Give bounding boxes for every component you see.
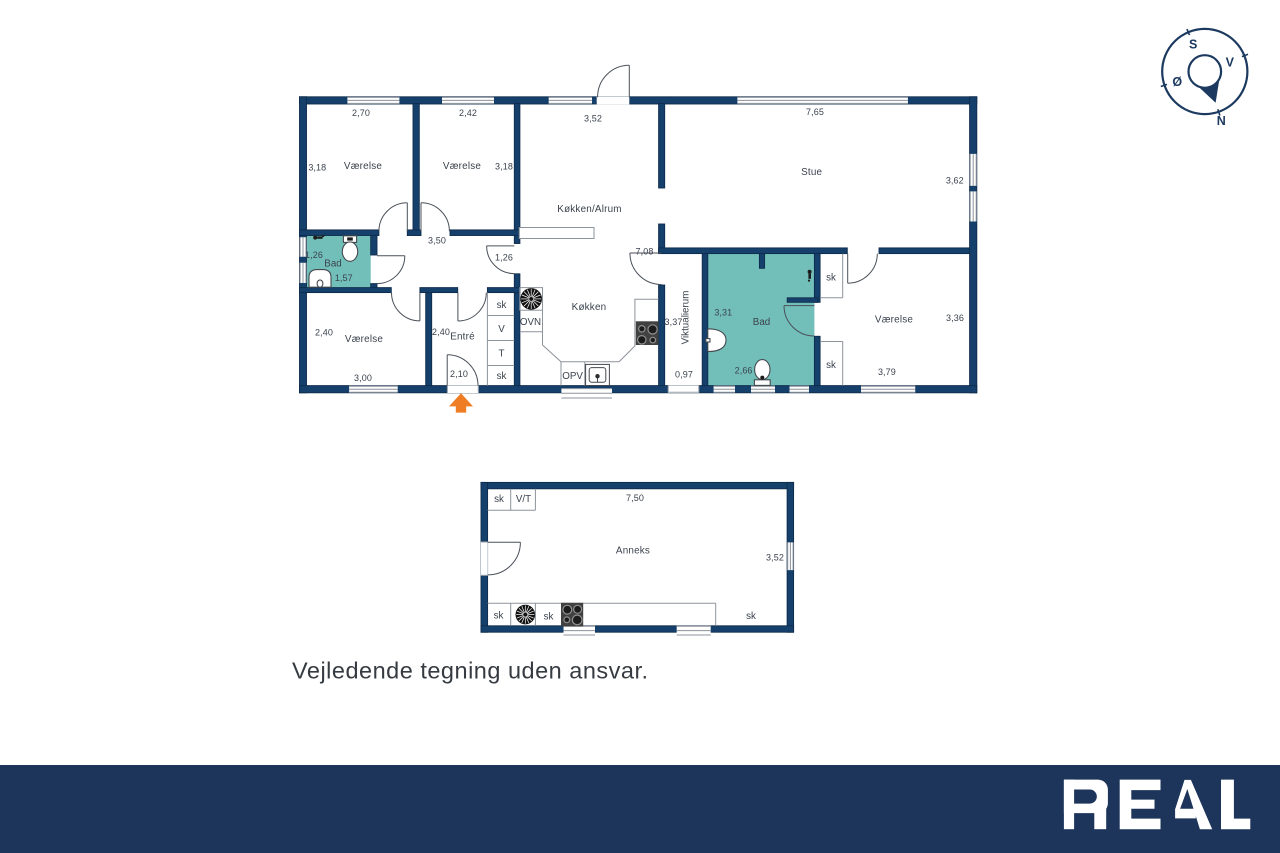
svg-text:sk: sk: [826, 360, 836, 371]
svg-text:V: V: [498, 324, 505, 335]
svg-text:sk: sk: [497, 300, 507, 311]
svg-text:N: N: [1217, 114, 1226, 128]
svg-text:3,52: 3,52: [584, 113, 602, 123]
svg-text:3,79: 3,79: [878, 367, 896, 377]
svg-text:3,36: 3,36: [946, 313, 964, 323]
svg-text:Værelse: Værelse: [344, 161, 382, 172]
svg-text:1,57: 1,57: [335, 273, 353, 283]
svg-text:7,65: 7,65: [806, 107, 824, 117]
svg-text:3,18: 3,18: [308, 163, 326, 173]
svg-text:Bad: Bad: [753, 317, 770, 328]
svg-text:V/T: V/T: [516, 494, 531, 505]
svg-text:2,10: 2,10: [450, 369, 468, 379]
svg-text:Anneks: Anneks: [616, 546, 650, 557]
svg-text:3,50: 3,50: [428, 236, 446, 246]
svg-text:2,70: 2,70: [352, 108, 370, 118]
svg-text:2,66: 2,66: [735, 366, 753, 376]
svg-text:Ø: Ø: [1172, 75, 1182, 89]
svg-text:0,97: 0,97: [675, 370, 693, 380]
svg-text:3,52: 3,52: [766, 553, 784, 563]
svg-text:3,18: 3,18: [495, 162, 513, 172]
svg-text:3,00: 3,00: [354, 373, 372, 383]
svg-text:2,42: 2,42: [459, 108, 477, 118]
svg-text:V: V: [1226, 56, 1235, 70]
svg-text:3,62: 3,62: [946, 176, 964, 186]
svg-text:1,26: 1,26: [495, 253, 513, 263]
svg-text:Vejledende tegning uden ansvar: Vejledende tegning uden ansvar.: [292, 658, 649, 684]
svg-text:sk: sk: [497, 371, 507, 382]
svg-text:3,37: 3,37: [665, 317, 683, 327]
svg-text:1,26: 1,26: [305, 250, 323, 260]
svg-text:S: S: [1189, 38, 1197, 52]
svg-text:2,40: 2,40: [315, 327, 333, 337]
svg-text:Entré: Entré: [450, 332, 475, 343]
svg-text:Værelse: Værelse: [443, 161, 481, 172]
svg-text:3,31: 3,31: [714, 307, 732, 317]
svg-text:7,50: 7,50: [626, 493, 644, 503]
svg-text:OPV: OPV: [562, 371, 583, 382]
svg-text:Køkken: Køkken: [572, 302, 607, 313]
svg-text:OVN: OVN: [520, 317, 541, 328]
svg-text:T: T: [499, 348, 505, 359]
svg-text:sk: sk: [826, 272, 836, 283]
svg-text:Bad: Bad: [324, 259, 341, 270]
svg-text:sk: sk: [746, 611, 756, 622]
svg-text:Værelse: Værelse: [875, 315, 913, 326]
svg-text:sk: sk: [494, 611, 504, 622]
svg-text:sk: sk: [494, 494, 504, 505]
svg-text:7,08: 7,08: [636, 246, 654, 256]
svg-text:Køkken/Alrum: Køkken/Alrum: [557, 204, 621, 215]
svg-text:Værelse: Værelse: [345, 334, 383, 345]
svg-text:2,40: 2,40: [432, 327, 450, 337]
svg-text:Stue: Stue: [801, 167, 822, 178]
svg-text:sk: sk: [544, 611, 554, 622]
